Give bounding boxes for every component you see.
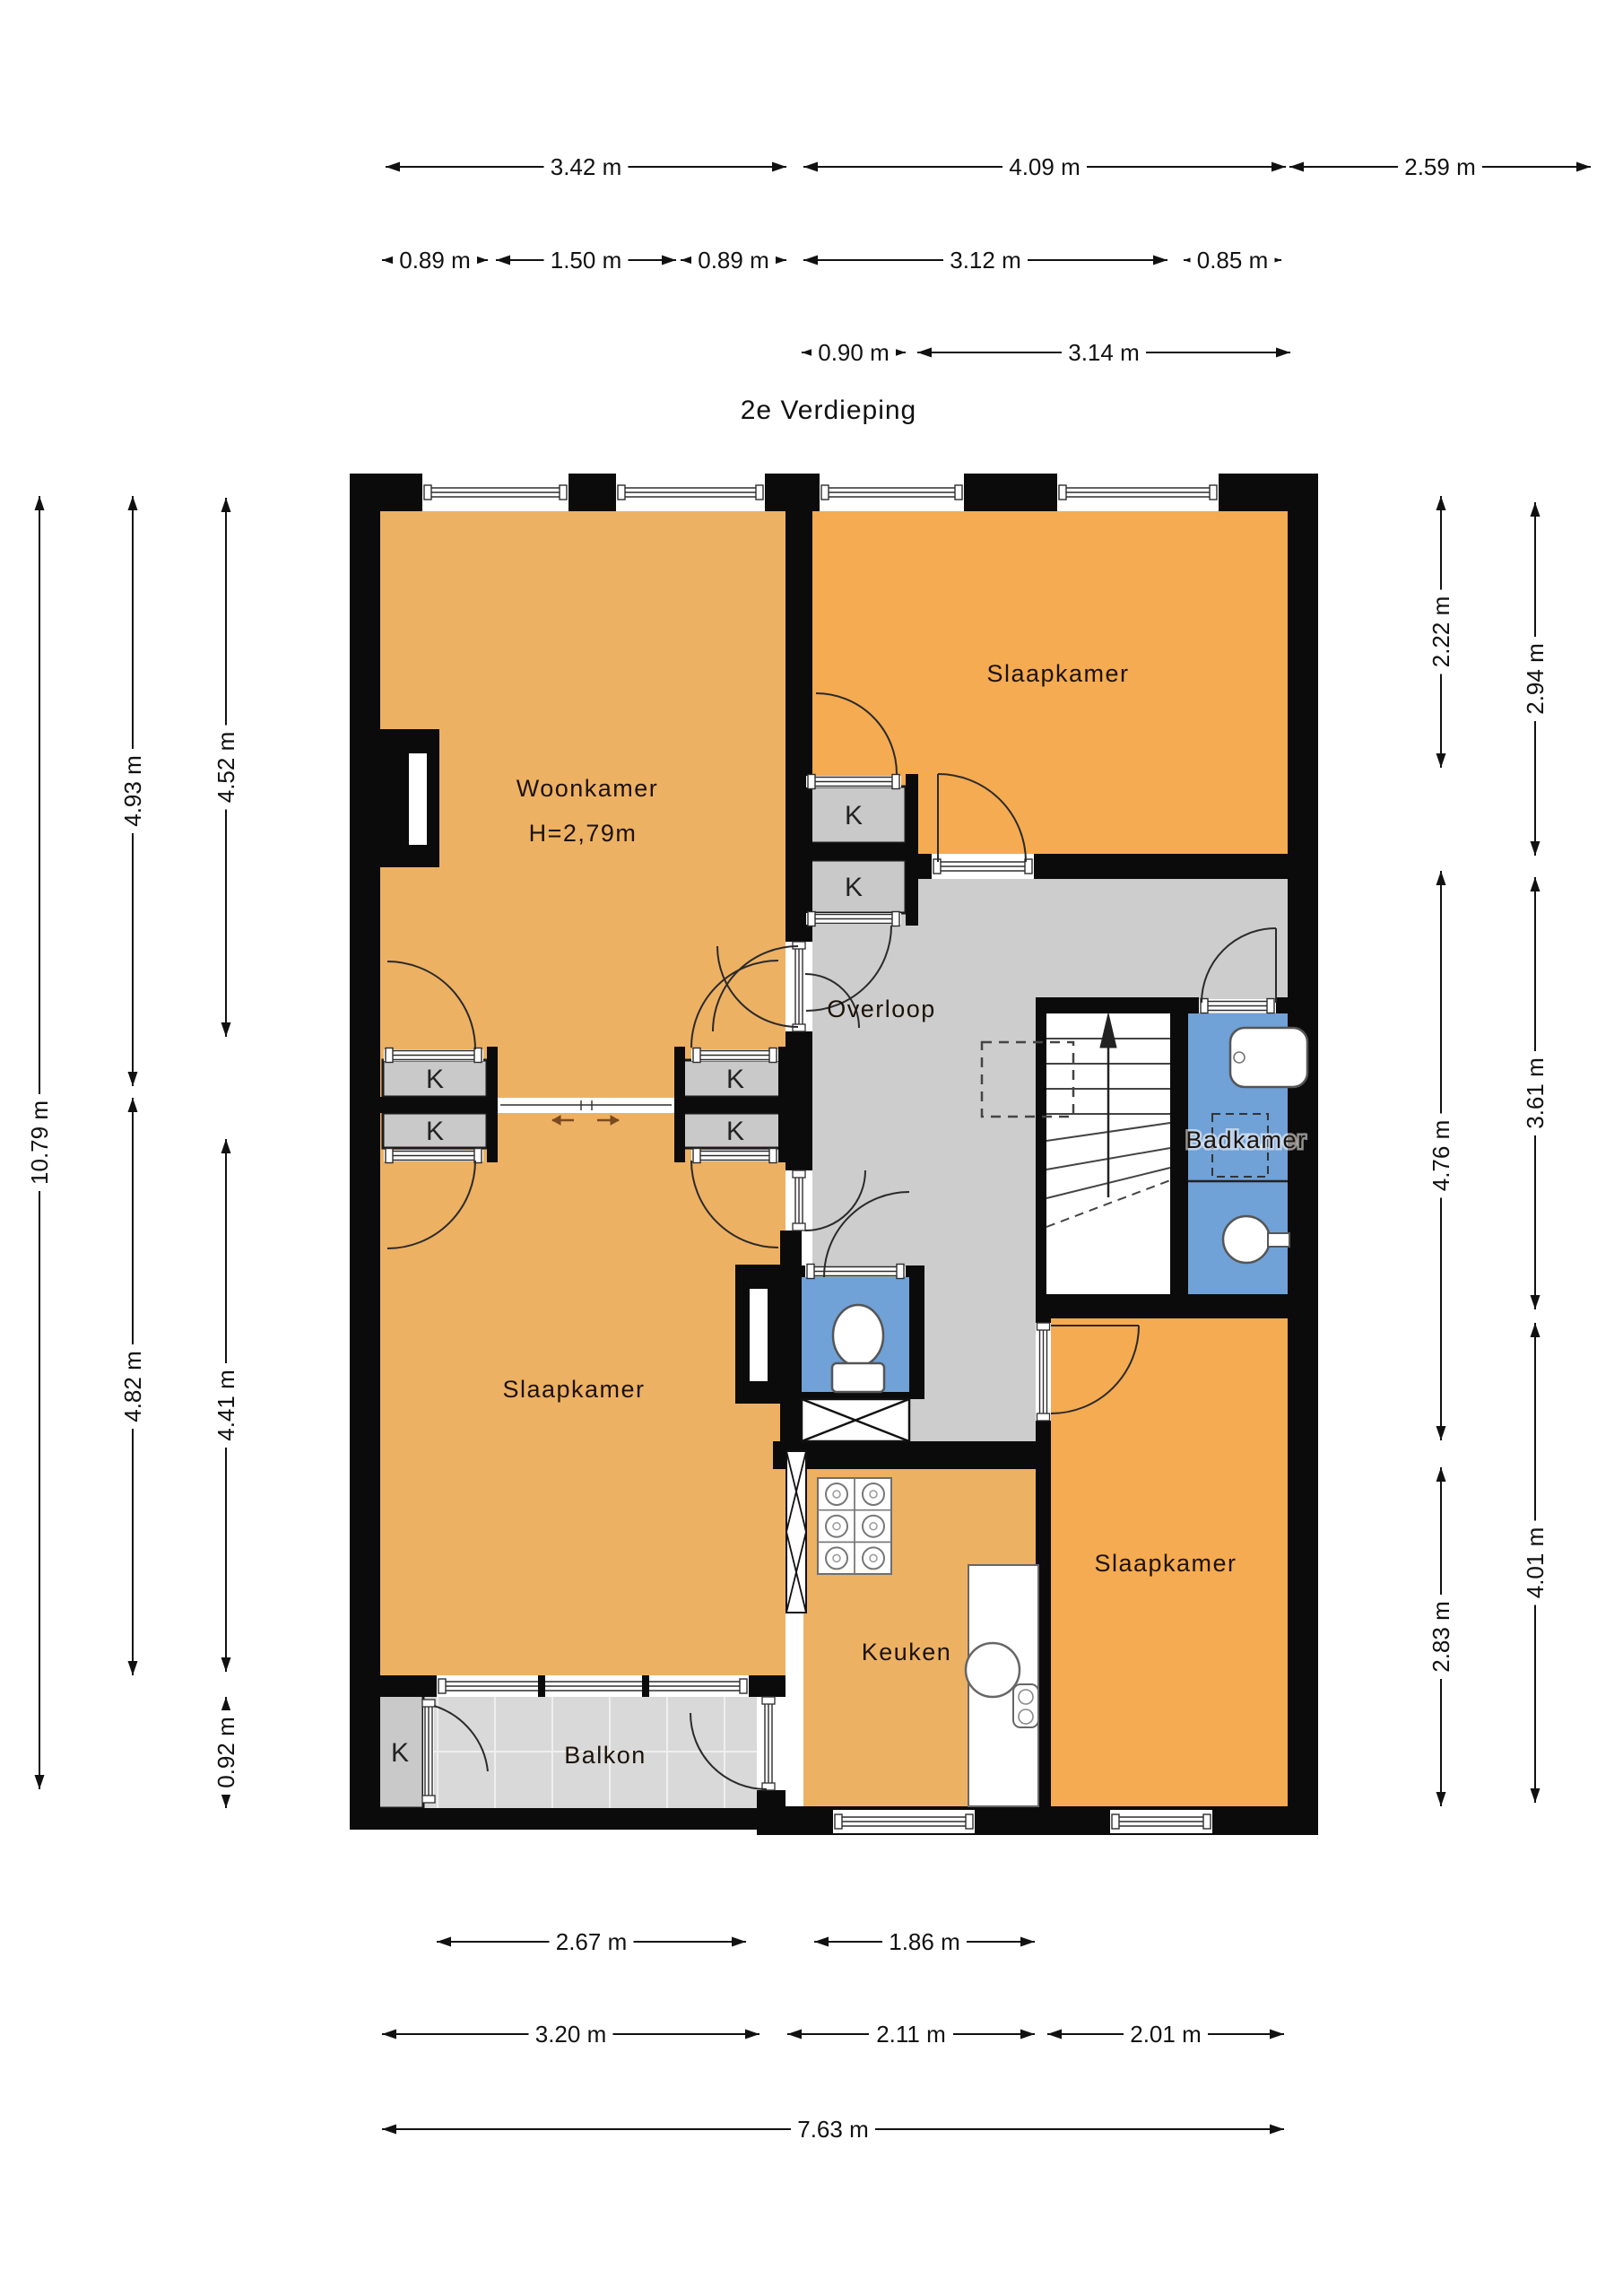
room-label-badkamer: Badkamer <box>1185 1126 1306 1153</box>
closet-label: K <box>426 1065 444 1094</box>
dim-label: 4.52 m <box>213 732 239 804</box>
dim-label: 3.20 m <box>535 2021 607 2048</box>
closet-label: K <box>845 801 863 831</box>
dim-label: 10.79 m <box>26 1100 53 1185</box>
room-label-balkon: Balkon <box>564 1742 647 1769</box>
room-label-slaapkamer-left: Slaapkamer <box>502 1376 645 1403</box>
dim-label: 0.89 m <box>698 247 769 274</box>
dim-label: 3.42 m <box>551 153 622 180</box>
dim-label: 4.76 m <box>1428 1120 1454 1192</box>
room-label-slaapkamer-bottom-right: Slaapkamer <box>1094 1550 1237 1577</box>
closet-label: K <box>391 1738 409 1768</box>
dim-h: 0.89 m <box>681 246 786 274</box>
dim-v: 0.92 m <box>212 1697 240 1808</box>
dim-h: 0.85 m <box>1184 246 1281 274</box>
dim-label: 1.86 m <box>889 1928 960 1955</box>
dim-label: 2.83 m <box>1428 1601 1454 1673</box>
dim-h: 0.89 m <box>382 246 488 274</box>
dim-label: 2.22 m <box>1428 596 1454 668</box>
closet-label: K <box>426 1117 444 1146</box>
dim-label: 2.11 m <box>876 2021 946 2048</box>
closet-label: K <box>726 1065 744 1094</box>
dim-h: 0.90 m <box>802 338 906 367</box>
dim-label: 1.50 m <box>551 247 622 274</box>
dim-label: 4.82 m <box>119 1351 146 1422</box>
dim-label: 0.89 m <box>399 247 471 274</box>
dim-label: 3.61 m <box>1522 1057 1549 1129</box>
floor-plan-page: WoonkamerH=2,79mSlaapkamerOverloopBadkam… <box>0 0 1623 2296</box>
dim-label: 2.67 m <box>556 1928 628 1955</box>
dim-label: 0.85 m <box>1197 247 1269 274</box>
closet-label: K <box>845 873 863 902</box>
toilet <box>833 1305 883 1366</box>
kitchen-sink <box>966 1643 1020 1697</box>
dim-label: 7.63 m <box>797 2116 869 2143</box>
bath-sink <box>1223 1216 1270 1263</box>
room-floors <box>380 511 1288 1808</box>
dim-label: 3.14 m <box>1068 339 1140 366</box>
room-label-keuken: Keuken <box>862 1639 952 1665</box>
dim-label: 2.94 m <box>1522 643 1549 715</box>
room-label-woonkamer-height: H=2,79m <box>529 820 638 847</box>
dim-label: 4.01 m <box>1522 1527 1549 1599</box>
room-label-overloop: Overloop <box>827 996 936 1022</box>
page-title: 2e Verdieping <box>741 396 917 425</box>
plan-title: 2e Verdieping <box>741 396 917 425</box>
dim-label: 0.90 m <box>818 339 890 366</box>
dim-label: 4.93 m <box>119 755 146 827</box>
dim-label: 0.92 m <box>213 1717 239 1788</box>
dim-label: 2.59 m <box>1404 153 1476 180</box>
dim-label: 2.01 m <box>1130 2021 1202 2048</box>
floor-plan-svg: WoonkamerH=2,79mSlaapkamerOverloopBadkam… <box>0 0 1623 2296</box>
dim-label: 4.09 m <box>1009 153 1081 180</box>
bathtub <box>1230 1028 1307 1087</box>
vent-shaft <box>786 1451 806 1613</box>
room-label-woonkamer: Woonkamer <box>516 775 659 802</box>
room-label-slaapkamer-top-right: Slaapkamer <box>986 660 1129 687</box>
dim-label: 4.41 m <box>213 1370 239 1441</box>
dim-label: 3.12 m <box>950 247 1021 274</box>
closet-label: K <box>726 1117 744 1146</box>
